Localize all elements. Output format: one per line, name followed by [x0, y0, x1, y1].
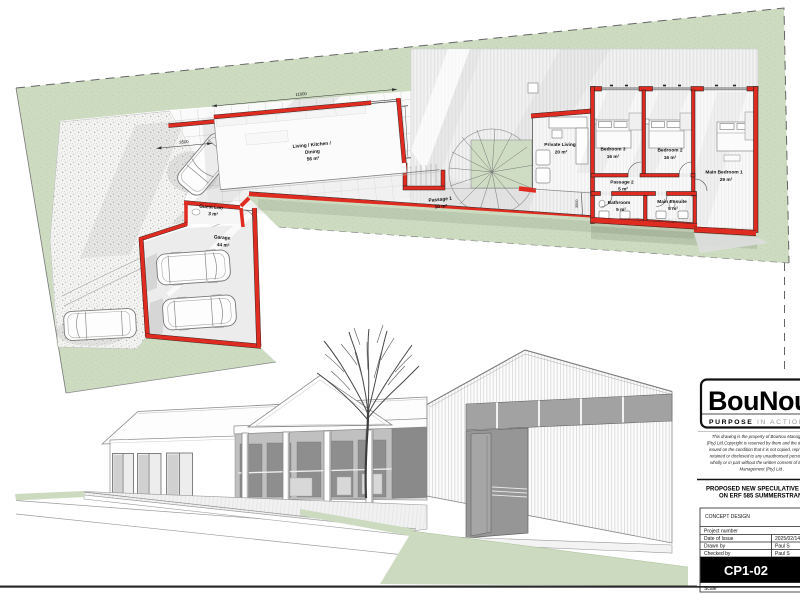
svg-text:5 m²: 5 m²: [618, 187, 628, 193]
svg-text:Scale: Scale: [704, 586, 717, 592]
svg-text:CONCEPT DESIGN: CONCEPT DESIGN: [705, 514, 750, 520]
svg-text:5 m²: 5 m²: [668, 206, 678, 212]
svg-text:44 m²: 44 m²: [217, 242, 230, 249]
svg-text:Management (Pty) Ltd .: Management (Pty) Ltd .: [740, 467, 785, 472]
svg-text:3 m²: 3 m²: [208, 211, 219, 218]
svg-text:PROPOSED NEW SPECULATIVE HOUSE: PROPOSED NEW SPECULATIVE HOUSE: [706, 487, 800, 493]
svg-text:Bedroom 3: Bedroom 3: [600, 147, 625, 153]
svg-text:CP1-02: CP1-02: [724, 563, 768, 578]
svg-text:5 m²: 5 m²: [616, 207, 626, 213]
svg-text:issued on the condition that i: issued on the condition that it is not c…: [709, 447, 800, 452]
svg-text:2025/02/14: 2025/02/14: [775, 536, 800, 542]
svg-text:Bathroom: Bathroom: [608, 200, 631, 206]
svg-text:3500: 3500: [575, 200, 579, 208]
svg-text:Private Living: Private Living: [544, 142, 576, 148]
svg-text:20 m²: 20 m²: [555, 150, 568, 156]
svg-text:ON ERF 585 SUMMERSTRAND PORT: ON ERF 585 SUMMERSTRAND PORT: [719, 494, 800, 500]
svg-text:3500: 3500: [179, 139, 189, 145]
svg-text:Paul S: Paul S: [775, 544, 790, 550]
svg-text:BouNou: BouNou: [708, 386, 800, 416]
svg-text:Paul S: Paul S: [775, 551, 790, 557]
svg-text:16 m²: 16 m²: [607, 154, 620, 160]
svg-text:(Pty) Ltd.Copyright is reserve: (Pty) Ltd.Copyright is reserved by them …: [707, 441, 800, 446]
svg-text:Date of Issue: Date of Issue: [704, 536, 734, 542]
svg-text:Bedroom 2: Bedroom 2: [657, 148, 682, 154]
svg-text:10 m²: 10 m²: [434, 203, 447, 210]
svg-text:29 m²: 29 m²: [720, 177, 733, 183]
svg-text:56 m²: 56 m²: [307, 156, 320, 163]
svg-text:Passage 2: Passage 2: [610, 180, 634, 186]
svg-text:Drawn by: Drawn by: [704, 544, 726, 550]
svg-text:wholly or in part without the: wholly or in part without the written co…: [710, 460, 800, 465]
svg-text:Checked by: Checked by: [704, 551, 731, 557]
svg-text:This drawing is the property o: This drawing is the property of BouNou M…: [712, 434, 800, 439]
svg-text:Main Ensuite: Main Ensuite: [657, 199, 687, 205]
svg-text:16 m²: 16 m²: [664, 155, 677, 161]
svg-text:PURPOSE IN ACTION: PURPOSE IN ACTION: [709, 419, 800, 426]
svg-text:Main Bedroom 1: Main Bedroom 1: [705, 170, 743, 176]
svg-text:Project number: Project number: [704, 529, 738, 535]
svg-text:retained or disclosed to any u: retained or disclosed to any unauthorise…: [710, 454, 800, 459]
